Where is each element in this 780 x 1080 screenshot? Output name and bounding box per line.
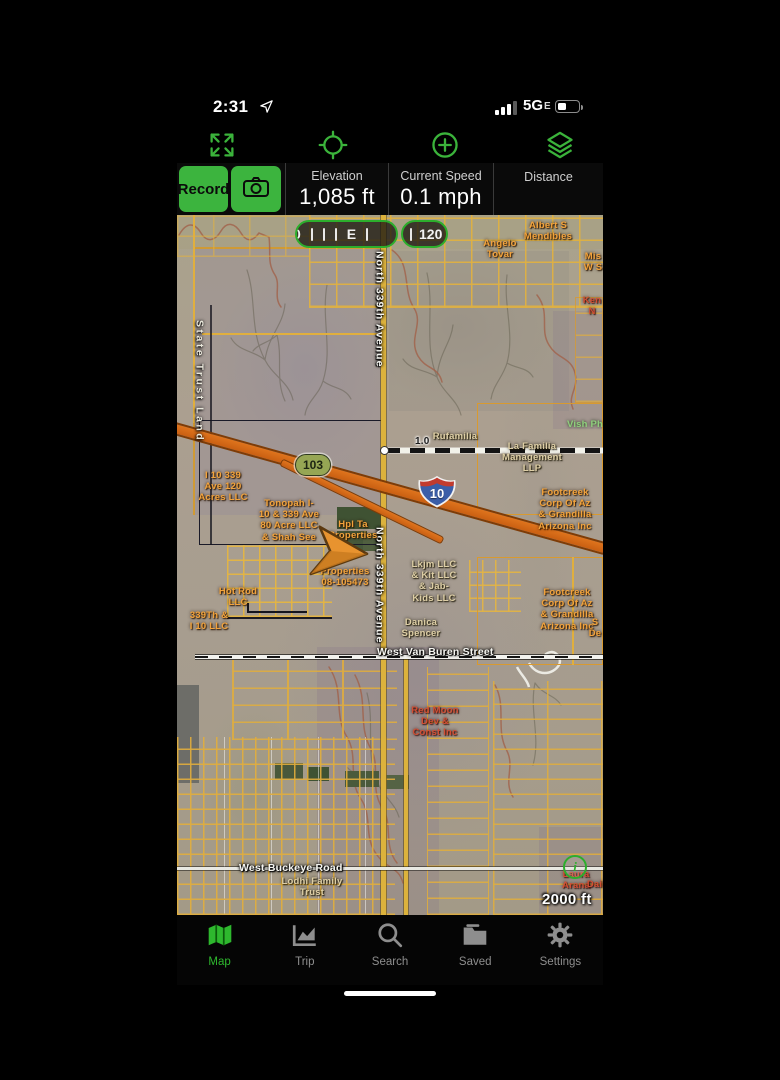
map-parcel-label: S De	[583, 617, 603, 639]
locate-me-icon[interactable]	[318, 130, 348, 160]
cellular-signal-icon	[495, 101, 519, 120]
camera-button[interactable]	[231, 166, 281, 212]
record-bar: Record Elevation 1,085 ft Current Speed …	[177, 163, 603, 215]
map-parcel-label: Footcreek Corp Of Az & Grandilla Arizona…	[532, 487, 598, 532]
camera-icon	[242, 176, 270, 203]
distance-marker-label: 1.0	[415, 436, 430, 448]
search-icon	[376, 922, 404, 953]
settings-gear-icon	[546, 922, 574, 953]
map-scale-label: 2000 ft	[542, 891, 592, 908]
distance-stat: Distance	[493, 163, 603, 215]
compass-heading-letter: E	[347, 226, 356, 242]
tab-search[interactable]: Search	[347, 915, 432, 985]
network-type: 5GE	[523, 97, 551, 114]
layers-icon[interactable]	[545, 130, 575, 160]
fullscreen-icon[interactable]	[207, 130, 237, 160]
status-bar: 2:31 5GE	[177, 88, 603, 126]
map-parcel-label: 339Th & I 10 LLC	[181, 610, 237, 632]
label-north-339th-avenue: North 339th Avenue	[373, 251, 385, 367]
map-view[interactable]: 103 10 State Trust LandNorth 339th Avenu…	[177, 215, 603, 915]
screen: 2:31 5GE	[0, 0, 780, 1080]
map-parcel-label: Ken N	[577, 295, 603, 317]
map-parcel-label: Hot Rod LLC	[210, 586, 266, 608]
label-west-buckeye-road: West Buckeye Road	[239, 862, 343, 874]
map-toolbar	[177, 126, 603, 163]
compass-heading-value: 120	[419, 226, 442, 242]
map-parcel-label: Rufamilia	[427, 431, 483, 442]
elevation-stat: Elevation 1,085 ft	[285, 163, 388, 215]
map-parcel-label: Vish Ph	[565, 419, 603, 430]
tab-saved[interactable]: Saved	[433, 915, 518, 985]
label-west-van-buren-street: West Van Buren Street	[377, 646, 494, 658]
saved-folder-icon	[461, 922, 489, 953]
add-waypoint-icon[interactable]	[430, 130, 460, 160]
location-services-icon	[259, 99, 274, 119]
current-position-arrow	[308, 524, 371, 582]
speed-stat: Current Speed 0.1 mph	[388, 163, 493, 215]
map-parcel-label: La Familia Management LLP	[499, 441, 565, 475]
map-parcel-label: Lodhi Family Trust	[277, 876, 347, 898]
tab-map[interactable]: Map	[177, 915, 262, 985]
home-indicator[interactable]	[344, 991, 436, 996]
trip-chart-icon	[291, 922, 319, 953]
tab-settings[interactable]: Settings	[518, 915, 603, 985]
tab-bar: Map Trip Search	[177, 915, 603, 985]
app-window: 2:31 5GE	[177, 88, 603, 1018]
info-icon: i	[573, 859, 577, 875]
compass-tape: 0 E	[295, 220, 398, 248]
battery-icon	[555, 100, 580, 113]
map-parcel-label: Lkjm LLC & Kit LLC & Jab- Kids LLC	[401, 559, 467, 604]
map-parcel-label: Danica Spencer	[393, 617, 449, 639]
map-parcel-label: Dail	[584, 879, 603, 890]
tab-trip[interactable]: Trip	[262, 915, 347, 985]
map-labels: State Trust LandNorth 339th AvenueNorth …	[177, 215, 603, 915]
label-state-trust-land: State Trust Land	[193, 320, 205, 442]
map-parcel-label: Red Moon Dev & Const Inc	[402, 705, 468, 739]
clock: 2:31	[213, 97, 248, 117]
map-parcel-label: Albert S Mendibles	[514, 220, 582, 242]
compass-tape-value: 120	[401, 220, 448, 248]
info-button[interactable]: i	[563, 855, 587, 879]
record-button[interactable]: Record	[179, 166, 228, 212]
map-parcel-label: I 10 339 Ave 120 Acres LLC	[192, 470, 254, 504]
map-icon	[206, 922, 234, 953]
map-parcel-label: Mis W S	[573, 251, 603, 273]
